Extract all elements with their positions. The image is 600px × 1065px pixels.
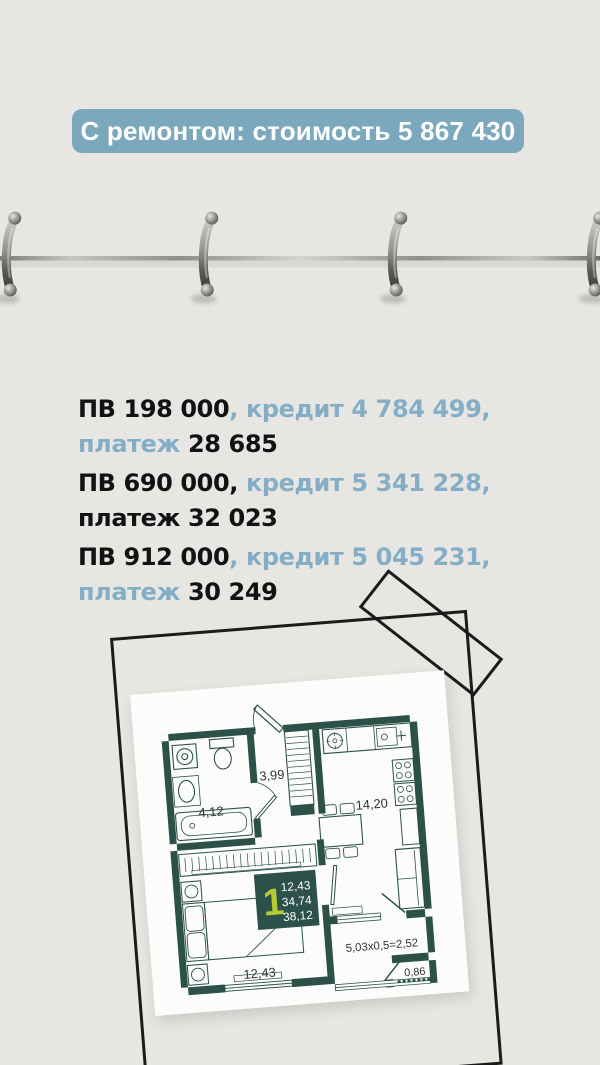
toilet-icon <box>209 738 235 770</box>
washing-machine-icon <box>172 744 198 770</box>
unit-info-badge: 1 12,43 34,74 38,12 <box>254 870 320 930</box>
kitchen-sink-icon <box>376 726 407 746</box>
binder-rod <box>0 256 600 261</box>
offer-block: ПВ 690 000, кредит 5 341 228,платеж 32 0… <box>78 466 548 536</box>
room-label-hallway: 3,99 <box>259 767 285 784</box>
offer-segment: кредит 4 784 499, <box>246 395 490 423</box>
offers-list: ПВ 198 000, кредит 4 784 499,платеж 28 6… <box>78 392 548 614</box>
offer-segment: ПВ 690 000 <box>78 469 229 497</box>
bedroom-door-icon <box>328 865 340 905</box>
offer-segment: , <box>229 469 246 497</box>
offer-segment: 30 249 <box>188 578 277 606</box>
offer-line: платеж 30 249 <box>78 575 548 610</box>
offer-segment: кредит 5 045 231, <box>246 543 490 571</box>
room-label-balcony-small: 0,86 <box>404 966 426 980</box>
stove-icon <box>392 759 416 806</box>
floorplan-card: 1 12,43 34,74 38,12 3,99 4,12 14,20 12,4… <box>130 670 469 1016</box>
offer-segment: , <box>229 395 246 423</box>
offer-line: ПВ 690 000, кредит 5 341 228, <box>78 466 548 501</box>
offer-segment: ПВ 912 000 <box>78 543 229 571</box>
svg-text:12,43: 12,43 <box>280 878 311 894</box>
room-label-kitchen-living: 14,20 <box>355 795 388 812</box>
fridge-icon <box>400 808 420 845</box>
offer-segment: ПВ 198 000 <box>78 395 229 423</box>
svg-text:38,12: 38,12 <box>283 908 314 924</box>
offer-line: ПВ 912 000, кредит 5 045 231, <box>78 540 548 575</box>
sofa-icon <box>395 848 424 909</box>
bathroom-sink-icon <box>172 775 200 807</box>
offer-block: ПВ 912 000, кредит 5 045 231,платеж 30 2… <box>78 540 548 610</box>
offer-segment: платеж 32 023 <box>78 504 277 532</box>
room-label-balcony: 5,03x0,5=2,52 <box>345 937 418 955</box>
hall-wardrobe-icon <box>284 730 314 806</box>
offer-line: платеж 28 685 <box>78 427 548 462</box>
svg-text:34,74: 34,74 <box>281 893 312 909</box>
offer-segment: , <box>229 543 246 571</box>
balcony-door-icon <box>382 892 405 914</box>
room-label-bedroom: 12,43 <box>243 964 276 981</box>
floorplan-drawing: 1 12,43 34,74 38,12 3,99 4,12 14,20 12,4… <box>152 676 444 1010</box>
offer-segment: платеж <box>78 578 188 606</box>
entrance-door-icon <box>252 703 283 734</box>
offer-line: платеж 32 023 <box>78 501 548 536</box>
price-badge: С ремонтом: стоимость 5 867 430 <box>72 109 524 153</box>
offer-line: ПВ 198 000, кредит 4 784 499, <box>78 392 548 427</box>
room-label-bathroom: 4,12 <box>198 803 224 820</box>
binder-rings <box>0 195 600 315</box>
bathroom-door-icon <box>253 781 279 819</box>
offer-segment: платеж <box>78 430 188 458</box>
offer-block: ПВ 198 000, кредит 4 784 499,платеж 28 6… <box>78 392 548 462</box>
offer-segment: 28 685 <box>188 430 277 458</box>
nightstand-icon <box>187 964 208 985</box>
offer-segment: кредит 5 341 228, <box>246 469 490 497</box>
nightstand-icon <box>181 881 202 902</box>
page-background: С ремонтом: стоимость 5 867 430 <box>0 0 600 1065</box>
hob-icon <box>326 732 344 750</box>
